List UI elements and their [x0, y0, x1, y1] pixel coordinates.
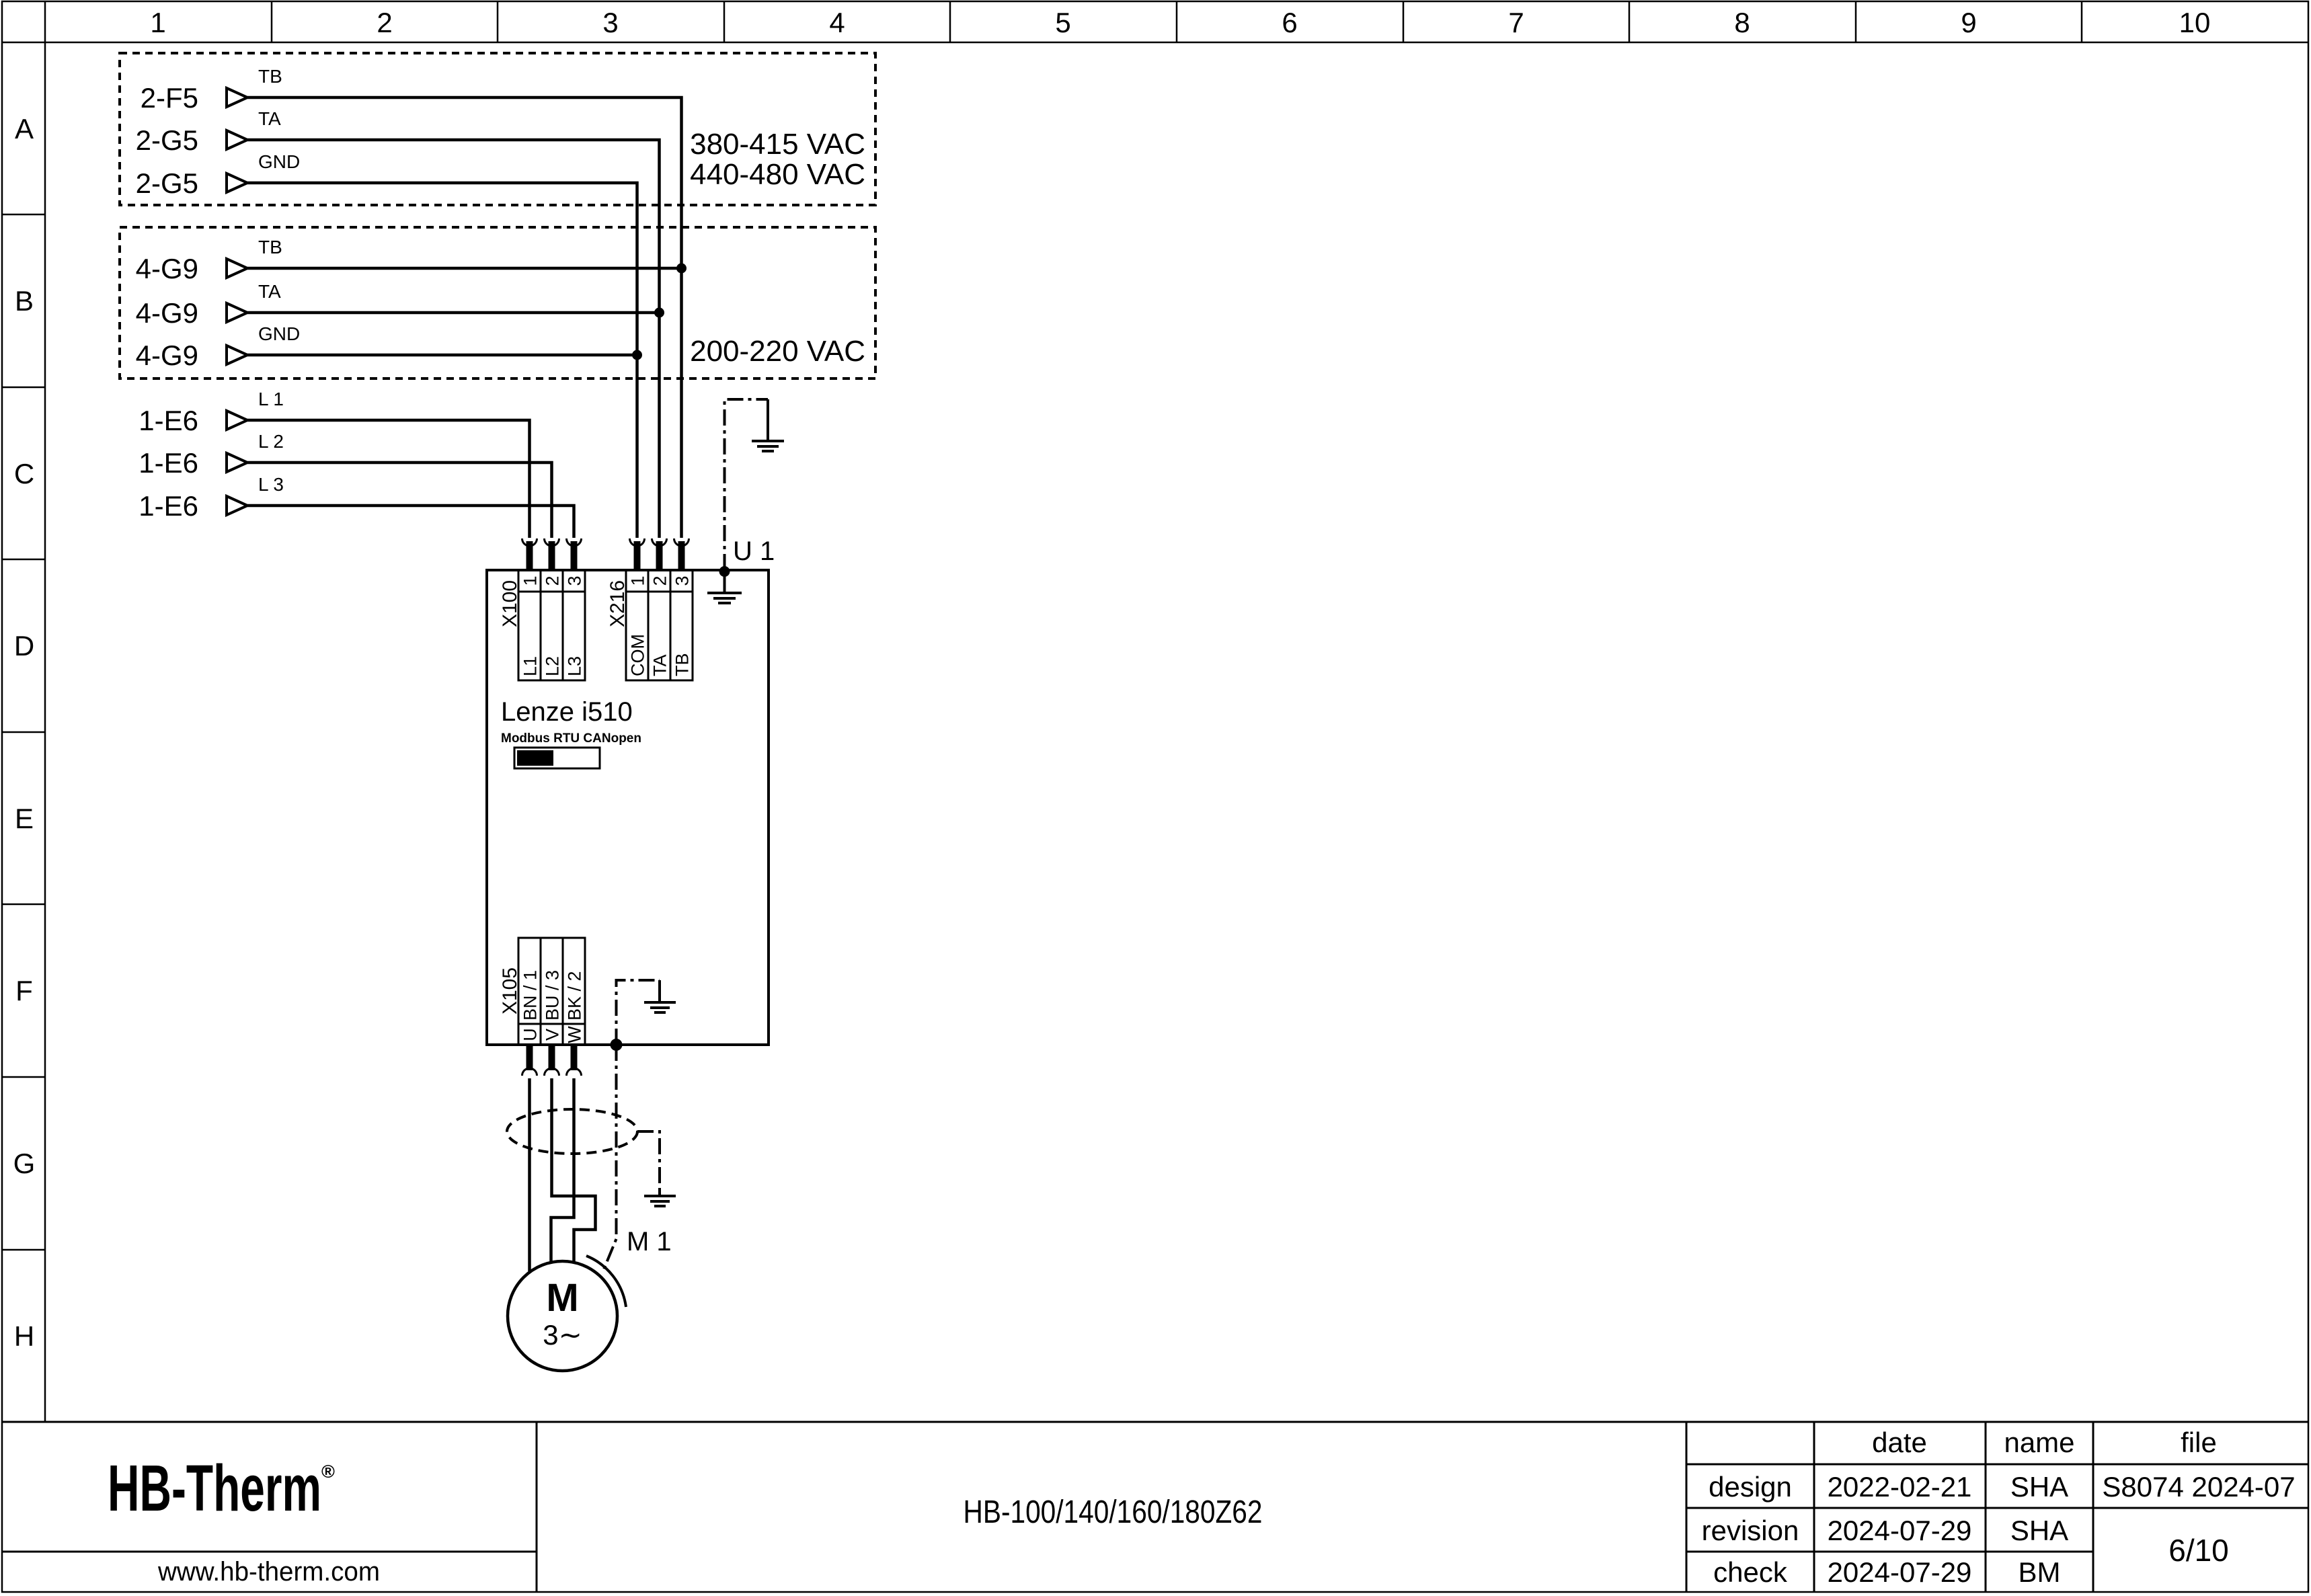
voltage-label: 200-220 VAC — [690, 335, 865, 368]
pin-number: U — [520, 1028, 541, 1041]
frame-col-label: 9 — [1961, 7, 1976, 38]
frame-col-label: 7 — [1508, 7, 1524, 38]
earth-ground-icon — [644, 980, 676, 1012]
frame-border — [2, 1, 2308, 1592]
wire-w — [551, 1078, 574, 1271]
source-arrow-icon — [227, 173, 247, 192]
wire-tb — [247, 97, 682, 538]
dip-switch — [514, 748, 600, 768]
source-group-c: 1-E6 1-E6 1-E6 L 1 L 2 L 3 — [139, 389, 574, 538]
source-arrow-icon — [227, 130, 247, 149]
shield-line — [617, 980, 660, 1045]
pin-number: 1 — [628, 575, 648, 586]
pin-label: L1 — [520, 656, 541, 676]
pin-label: COM — [628, 634, 648, 676]
pin-number: 3 — [565, 575, 585, 586]
signal-label: TB — [258, 66, 282, 87]
website: www.hb-therm.com — [157, 1557, 380, 1587]
col-header-file: file — [2181, 1427, 2217, 1458]
page-number: 6/10 — [2168, 1533, 2229, 1568]
source-ref: 2-F5 — [141, 82, 198, 114]
source-ref: 1-E6 — [139, 490, 198, 522]
pin-label: BN / 1 — [520, 970, 541, 1021]
earth-ground-icon — [752, 399, 784, 451]
revision-date: 2024-07-29 — [1828, 1515, 1972, 1546]
source-ref: 1-E6 — [139, 405, 198, 436]
signal-label: TB — [258, 237, 282, 257]
junction-dot — [676, 264, 687, 274]
pin-number: 2 — [543, 575, 563, 586]
signal-label: TA — [258, 108, 281, 129]
source-arrow-icon — [227, 453, 247, 472]
motor-designator: M 1 — [627, 1227, 672, 1256]
cable-shield-ellipse — [507, 1109, 637, 1154]
frame-row-label: D — [14, 630, 34, 662]
wire-gnd — [247, 183, 637, 538]
frame-grid-lines — [2, 1, 2308, 1422]
pin-number: W — [565, 1026, 585, 1043]
signal-label: GND — [258, 323, 300, 344]
drive-designator: U 1 — [733, 536, 775, 566]
wire-l1 — [247, 420, 530, 538]
pin-label: BU / 3 — [543, 970, 563, 1021]
source-arrow-icon — [227, 303, 247, 322]
source-ref: 4-G9 — [136, 297, 198, 329]
row-label-design: design — [1709, 1471, 1792, 1503]
drive-model: Lenze i510 — [501, 697, 633, 727]
frame-col-label: 3 — [602, 7, 618, 38]
frame-row-label: A — [15, 113, 34, 145]
plug-pins — [526, 541, 685, 570]
product-title: HB-100/140/160/180Z62 — [964, 1494, 1263, 1530]
earth-ground-icon — [707, 571, 742, 603]
source-arrow-icon — [227, 411, 247, 430]
source-ref: 2-G5 — [136, 167, 198, 199]
signal-label: L 3 — [258, 474, 284, 495]
pin-number: 2 — [650, 575, 670, 586]
source-ref: 4-G9 — [136, 253, 198, 284]
schematic-page: 1 2 3 4 5 6 7 8 9 10 A B C D E F G H 2-F… — [0, 0, 2311, 1596]
source-arrow-icon — [227, 259, 247, 278]
plug-connectors-top — [522, 538, 689, 570]
signal-label: GND — [258, 151, 300, 172]
file-value: S8074 2024-07 — [2102, 1471, 2295, 1503]
terminal-x105: X105 BN / 1 BU / 3 BK / 2 U V W — [499, 938, 585, 1045]
earth-ground-icon — [644, 1190, 676, 1206]
title-block: HB-Therm ® www.hb-therm.com HB-100/140/1… — [2, 1422, 2308, 1592]
check-date: 2024-07-29 — [1828, 1556, 1972, 1588]
voltage-label: 380-415 VAC — [690, 128, 865, 161]
check-name: BM — [2019, 1556, 2061, 1588]
frame-row-label: E — [15, 803, 34, 834]
pin-label: L2 — [543, 656, 563, 676]
terminal-x216: X216 1 2 3 COM TA TB — [606, 570, 693, 680]
pin-label: L3 — [565, 656, 585, 676]
source-arrow-icon — [227, 346, 247, 364]
motor-shield-line — [604, 1045, 617, 1269]
frame-col-label: 4 — [829, 7, 845, 38]
junction-dot — [632, 350, 642, 360]
drawing-frame: 1 2 3 4 5 6 7 8 9 10 A B C D E F G H — [2, 1, 2308, 1592]
motor: M 3∼ M 1 — [508, 1227, 672, 1371]
drive-fieldbus: Modbus RTU CANopen — [501, 731, 641, 746]
frame-row-label: H — [14, 1320, 34, 1352]
pin-number: 3 — [672, 575, 693, 586]
frame-col-label: 1 — [150, 7, 165, 38]
signal-label: L 1 — [258, 389, 284, 409]
voltage-label: 440-480 VAC — [690, 158, 865, 191]
wire-l2 — [247, 463, 552, 538]
frame-row-label: B — [15, 285, 34, 317]
terminal-x100: X100 1 2 3 L1 L2 L3 — [499, 570, 585, 680]
frame-col-label: 6 — [1282, 7, 1297, 38]
pin-number: V — [543, 1029, 563, 1041]
frame-col-label: 5 — [1055, 7, 1070, 38]
row-label-revision: revision — [1702, 1515, 1799, 1546]
source-group-b: 4-G9 4-G9 4-G9 TB TA GND 200-220 VAC — [120, 227, 875, 378]
motor-symbol: M — [546, 1276, 578, 1320]
source-ref: 4-G9 — [136, 340, 198, 371]
motor-phase: 3∼ — [543, 1319, 582, 1351]
col-header-date: date — [1872, 1427, 1927, 1458]
pin-label: BK / 2 — [565, 971, 585, 1021]
source-ref: 1-E6 — [139, 447, 198, 479]
registered-mark-icon: ® — [321, 1462, 335, 1482]
plug-pins — [526, 1046, 578, 1070]
signal-label: L 2 — [258, 431, 284, 452]
col-header-name: name — [2004, 1427, 2074, 1458]
frame-row-label: G — [13, 1148, 36, 1179]
frame-col-label: 2 — [377, 7, 392, 38]
source-group-a: 2-F5 2-G5 2-G5 TB TA GND 380-415 VAC 440… — [120, 53, 875, 538]
revision-name: SHA — [2010, 1515, 2068, 1546]
pin-label: TA — [650, 655, 670, 677]
drive-shield-top: U 1 — [719, 399, 785, 577]
design-name: SHA — [2010, 1471, 2068, 1503]
frame-col-label: 10 — [2179, 7, 2211, 38]
source-ref: 2-G5 — [136, 124, 198, 156]
wire-l3 — [247, 506, 574, 538]
drive-unit: X100 1 2 3 L1 L2 L3 X216 1 2 3 COM — [487, 570, 769, 1045]
cable-shield-ground — [637, 1131, 676, 1206]
frame-col-label: 8 — [1734, 7, 1750, 38]
drive-shield-bottom — [617, 980, 676, 1045]
frame-row-label: C — [14, 458, 34, 489]
schematic-canvas: 1 2 3 4 5 6 7 8 9 10 A B C D E F G H 2-F… — [0, 0, 2311, 1596]
source-arrow-icon — [227, 88, 247, 107]
logo-text: HB-Therm — [108, 1451, 321, 1525]
dip-switch-knob — [517, 750, 553, 766]
frame-row-label: F — [15, 975, 33, 1006]
wire-ta — [247, 140, 660, 538]
design-date: 2022-02-21 — [1828, 1471, 1972, 1503]
row-label-check: check — [1713, 1556, 1788, 1588]
socket-icon — [522, 538, 689, 546]
source-arrow-icon — [227, 496, 247, 515]
pin-number: 1 — [520, 575, 541, 586]
signal-label: TA — [258, 281, 281, 302]
logo: HB-Therm ® — [108, 1451, 335, 1525]
junction-dot — [654, 308, 664, 318]
shield-line — [637, 1131, 660, 1190]
pin-label: TB — [672, 653, 693, 676]
